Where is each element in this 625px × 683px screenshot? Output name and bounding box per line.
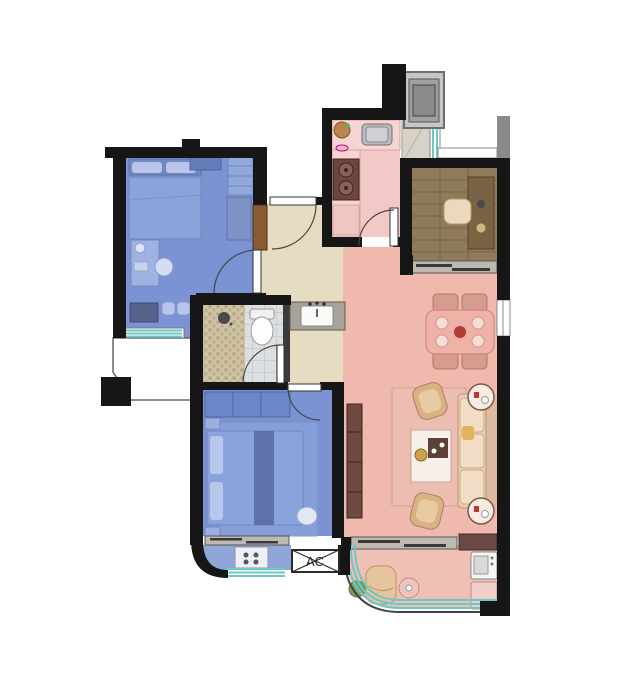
desk-plant — [476, 223, 486, 233]
side-table-cup — [482, 511, 489, 518]
wall-segment — [480, 601, 510, 616]
bed-pillow — [132, 162, 162, 173]
bed-blanket — [129, 177, 201, 239]
living-balcony-window-box — [459, 534, 497, 550]
bed-pillow — [210, 436, 223, 474]
tray-cup — [432, 449, 437, 454]
plate — [436, 317, 448, 329]
ac-condenser-box: AC — [292, 550, 339, 572]
wall-segment — [497, 336, 510, 548]
wall-segment — [322, 237, 362, 247]
study-chair — [444, 199, 471, 224]
side-table-cup — [482, 397, 489, 404]
wall-segment — [497, 548, 510, 606]
desk-pad — [134, 262, 148, 271]
wall-segment — [191, 382, 288, 390]
washer-knob — [491, 557, 494, 560]
wall-segment — [182, 139, 200, 148]
shelf-unit — [190, 156, 221, 170]
side-table — [468, 498, 494, 524]
sofa-pillow — [462, 426, 474, 440]
kitchen-sink-basin — [366, 127, 388, 142]
wall-segment — [497, 158, 510, 290]
wall-segment — [406, 158, 510, 168]
wall-segment — [190, 295, 203, 545]
wall-segment — [382, 64, 406, 114]
faucet-dot — [308, 302, 312, 306]
washing-machine-door — [474, 556, 488, 574]
stove-burner-center — [344, 186, 348, 190]
floor-plan: AC — [0, 0, 625, 683]
wardrobe — [205, 392, 290, 417]
shower-spray — [230, 323, 233, 326]
bedroom-2-door-leaf — [288, 384, 321, 391]
bed-pillow — [210, 482, 223, 520]
kitchen-plant-leaf — [344, 123, 350, 129]
plate — [436, 335, 448, 347]
shower-head — [218, 312, 230, 324]
washer-knob — [491, 563, 494, 566]
front-door-leaf — [270, 197, 316, 205]
side-table — [468, 384, 494, 410]
balcony-cup — [406, 585, 412, 591]
dining-chair — [433, 294, 458, 311]
cabinet-knob — [244, 553, 249, 558]
faucet-dot — [315, 301, 319, 305]
dining-chair — [462, 352, 487, 369]
dining-chair — [462, 294, 487, 311]
ac-label: AC — [306, 554, 324, 569]
faucet-dot — [322, 302, 326, 306]
wall-segment — [105, 147, 265, 158]
wall-segment — [101, 377, 131, 406]
toilet-bowl — [251, 317, 273, 345]
wall-segment — [191, 295, 291, 305]
plate — [472, 335, 484, 347]
balcony-cabinet — [235, 547, 268, 568]
desk-chair — [155, 258, 173, 276]
wall-segment — [341, 537, 351, 550]
table-plant — [415, 449, 427, 461]
tv-stand — [130, 303, 158, 322]
stove-burner-center — [344, 168, 348, 172]
floor-cushion — [162, 302, 175, 315]
study-desk — [468, 177, 494, 249]
cabinet-knob — [254, 553, 259, 558]
bed-runner — [254, 431, 274, 525]
nightstand — [205, 418, 220, 429]
stool — [297, 507, 317, 525]
kitchen-lower-cabinet — [333, 205, 359, 235]
wall-segment — [322, 108, 332, 247]
kitchen-door-leaf — [390, 208, 398, 246]
desk-lamp — [135, 243, 145, 253]
table-centerpiece — [454, 326, 466, 338]
lounge-chair — [366, 566, 396, 604]
kitchen-dish — [336, 145, 348, 151]
dining-chair — [433, 352, 458, 369]
tray-cup — [440, 443, 445, 448]
floor-plan-page: AC — [0, 0, 625, 683]
side-table-deco — [474, 392, 479, 398]
wall-segment — [332, 388, 344, 538]
study-top-window — [438, 148, 497, 158]
side-table-deco — [474, 506, 479, 512]
wall-segment — [400, 255, 413, 275]
bathroom-door-leaf — [277, 345, 284, 383]
plate — [472, 317, 484, 329]
coffee-table-tray — [428, 438, 448, 458]
floor-cushion — [177, 302, 190, 315]
wall-segment — [253, 147, 267, 205]
bedroom-1-door-leaf — [253, 250, 261, 293]
entry-shoe-cabinet — [253, 205, 267, 250]
ac-outdoor-unit-core — [413, 85, 435, 116]
wall-segment — [497, 284, 510, 300]
desk-lamp — [477, 200, 485, 208]
right-gray-wall-bar — [497, 116, 510, 160]
dresser — [227, 197, 251, 240]
wall-segment — [113, 147, 126, 338]
tv-cabinet — [347, 404, 362, 518]
cabinet-knob — [244, 560, 249, 565]
cabinet-knob — [254, 560, 259, 565]
